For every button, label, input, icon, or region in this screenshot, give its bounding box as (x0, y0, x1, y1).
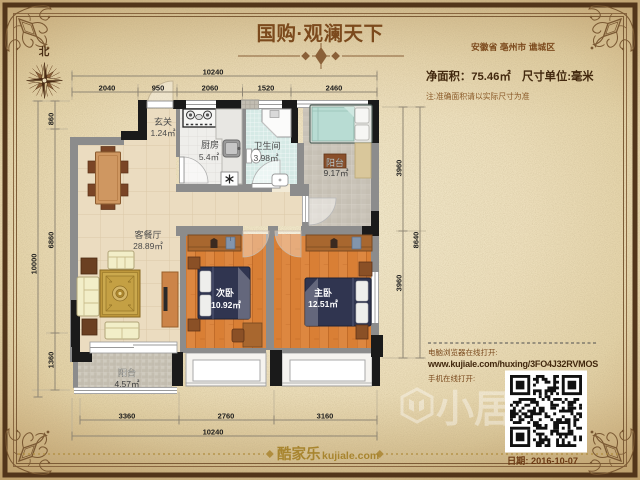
svg-text:北: 北 (39, 45, 50, 58)
svg-text:手机在线打开:: 手机在线打开: (428, 373, 475, 383)
svg-text:3960: 3960 (395, 160, 404, 177)
svg-text:净面积：75.46㎡ 尺寸单位:毫米: 净面积：75.46㎡ 尺寸单位:毫米 (426, 69, 594, 83)
svg-text:950: 950 (152, 84, 165, 93)
svg-text:10240: 10240 (203, 68, 224, 77)
svg-text:28.89㎡: 28.89㎡ (133, 241, 163, 251)
svg-text:厨房: 厨房 (201, 139, 219, 150)
svg-text:1520: 1520 (258, 84, 275, 93)
svg-text:1.24㎡: 1.24㎡ (150, 128, 176, 138)
svg-text:玄关: 玄关 (154, 116, 172, 127)
svg-text:酷家乐: 酷家乐 (277, 445, 321, 463)
svg-text:10000: 10000 (30, 254, 39, 275)
svg-text:10240: 10240 (203, 428, 224, 437)
svg-text:2760: 2760 (218, 412, 235, 421)
svg-text:5.4㎡: 5.4㎡ (199, 152, 220, 162)
svg-text:3160: 3160 (317, 412, 334, 421)
svg-text:卫生间: 卫生间 (253, 140, 280, 151)
svg-text:12.51㎡: 12.51㎡ (308, 299, 338, 309)
svg-text:8640: 8640 (412, 232, 421, 249)
svg-text:小居: 小居 (436, 389, 512, 431)
svg-text:3.98㎡: 3.98㎡ (253, 153, 279, 163)
svg-text:2060: 2060 (202, 84, 219, 93)
svg-text:日期: 2016-10-07: 日期: 2016-10-07 (507, 455, 578, 466)
svg-text:kujiale.com: kujiale.com (322, 450, 379, 462)
svg-text:阳台: 阳台 (326, 157, 344, 168)
svg-text:3960: 3960 (395, 275, 404, 292)
svg-text:2460: 2460 (326, 84, 343, 93)
svg-text:6860: 6860 (47, 232, 56, 249)
svg-text:860: 860 (47, 113, 56, 126)
svg-text:9.17㎡: 9.17㎡ (323, 168, 349, 178)
svg-text:安徽省 亳州市 谯城区: 安徽省 亳州市 谯城区 (471, 41, 555, 52)
svg-text:客餐厅: 客餐厅 (134, 229, 161, 240)
svg-text:www.kujiale.com/huxing/3FO4J32: www.kujiale.com/huxing/3FO4J32RVMOS (427, 359, 598, 369)
svg-text:3360: 3360 (119, 412, 136, 421)
svg-text:电脑浏览器在线打开:: 电脑浏览器在线打开: (428, 347, 498, 357)
svg-text:1360: 1360 (47, 352, 56, 369)
svg-text:2040: 2040 (99, 84, 116, 93)
svg-text:次卧: 次卧 (216, 287, 234, 298)
svg-text:阳台: 阳台 (118, 367, 136, 378)
svg-text:国购·观澜天下: 国购·观澜天下 (257, 22, 384, 45)
svg-text:4.57㎡: 4.57㎡ (114, 379, 140, 389)
svg-text:10.92㎡: 10.92㎡ (211, 300, 241, 310)
svg-text:主卧: 主卧 (314, 287, 332, 298)
svg-text:注:准确面积请以实际尺寸为准: 注:准确面积请以实际尺寸为准 (426, 91, 530, 101)
